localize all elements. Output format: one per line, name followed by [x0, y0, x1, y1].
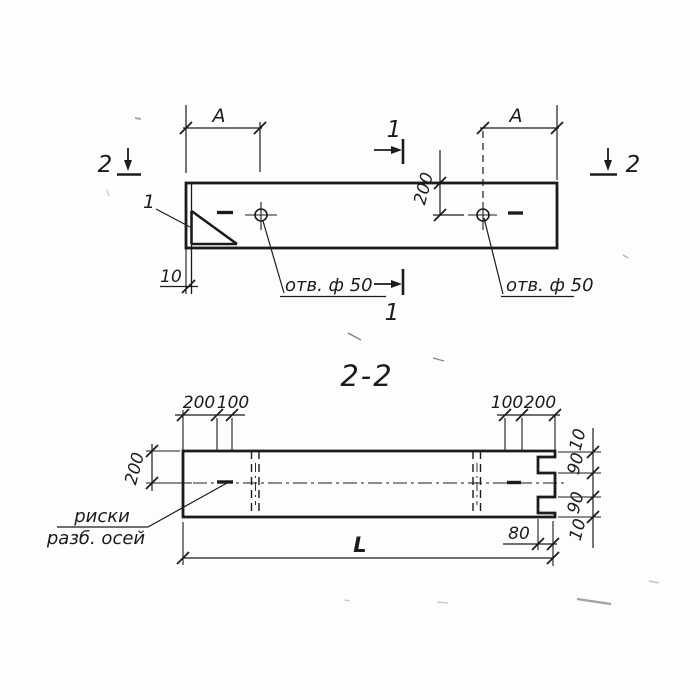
- technical-drawing: 1 A: [0, 0, 700, 700]
- dim-10-label: 10: [160, 267, 182, 287]
- dim-length: [177, 522, 559, 565]
- dim-length-label: L: [353, 533, 366, 557]
- section-title: 2-2: [340, 359, 393, 393]
- dim-top-right-200-label: 200: [524, 393, 556, 413]
- dim-top-left-100-label: 100: [217, 393, 249, 413]
- hole-label-left: отв. ф 50: [285, 275, 373, 296]
- dim-top-right-100-label: 100: [491, 393, 523, 413]
- dim-200-left-label: 200: [121, 450, 149, 487]
- section-2-left-label: 2: [98, 152, 113, 178]
- dim-right-10-top-label: 10: [566, 427, 591, 453]
- axes-note-line2: разб. осей: [46, 528, 146, 549]
- hidden-hole-left: [252, 451, 260, 517]
- hole-right-icon: [468, 202, 497, 230]
- panel-outline: [186, 183, 557, 248]
- hole-label-right: отв. ф 50: [506, 275, 594, 296]
- section-outline: [183, 451, 555, 517]
- hole-left-icon: [245, 202, 277, 230]
- section-1-bottom-label: 1: [385, 300, 400, 326]
- drawing-sheet: 1 A: [0, 0, 700, 700]
- section-1-top-label: 1: [387, 117, 402, 143]
- dim-a-right-label: A: [508, 105, 523, 127]
- top-view: 1 A: [98, 105, 641, 326]
- section-marker-2-right: [590, 148, 617, 175]
- section-marker-2-left: [117, 148, 141, 175]
- dim-top-left-200-label: 200: [183, 393, 215, 413]
- dim-80-label: 80: [508, 524, 530, 544]
- dim-top-left: [175, 409, 245, 451]
- section-view: 200 200 100 100 200: [46, 393, 601, 566]
- section-2-right-label: 2: [626, 152, 641, 178]
- hidden-hole-right: [473, 451, 481, 517]
- axes-note-line1: риски: [73, 506, 130, 527]
- detail-ref-label: 1: [143, 191, 155, 213]
- dim-200-label: 200: [410, 170, 438, 207]
- section-marker-1-bottom: [374, 269, 403, 295]
- dim-right-90-bottom-label: 90: [564, 490, 589, 516]
- dim-top-right: [497, 409, 561, 451]
- dim-right-10-bottom-label: 10: [566, 517, 591, 543]
- dim-a-left-label: A: [211, 105, 226, 127]
- dim-200-top-view: [433, 150, 464, 221]
- corner-triangle-detail: [192, 211, 238, 244]
